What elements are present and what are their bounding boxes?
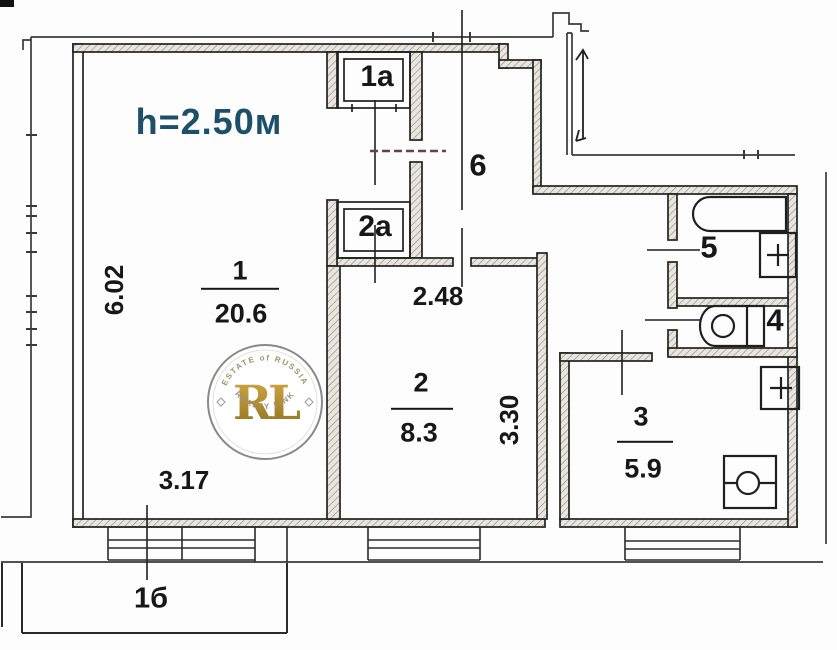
wall-corridor-right — [533, 60, 541, 192]
room5-label: 5 — [700, 232, 717, 263]
kitchen-window — [625, 527, 740, 560]
room1-area: 20.6 — [215, 301, 268, 328]
wall-bath-top — [533, 186, 797, 194]
dim-room1-width: 3.17 — [159, 467, 210, 493]
room2-area: 8.3 — [400, 420, 438, 447]
wall-bottom-left — [73, 519, 545, 527]
room1-number: 1 — [232, 258, 247, 285]
windows — [108, 527, 740, 562]
balcony-window-door — [108, 527, 287, 562]
room2-window — [368, 527, 480, 560]
wall-wc-bottom — [668, 348, 797, 357]
room4-label: 4 — [766, 305, 783, 336]
wall-top — [73, 44, 507, 52]
dim-room1-depth: 6.02 — [101, 265, 127, 316]
ceiling-height-label: h=2.50м — [136, 104, 283, 140]
bathtub-icon — [693, 197, 786, 231]
corner-mark — [0, 0, 14, 7]
room6-label: 6 — [469, 150, 486, 181]
toilet-icon — [700, 306, 764, 346]
room3-number: 3 — [633, 404, 648, 431]
floor-plan-drawing: RL ESTATE of RUSSIA REALTY LINK — [0, 0, 837, 650]
stair-arrow-icon — [576, 50, 588, 141]
room3-area: 5.9 — [624, 456, 662, 483]
room2-number: 2 — [413, 370, 428, 397]
wall-room1-room2 — [327, 266, 340, 519]
dim-room2-depth: 3.30 — [496, 395, 522, 446]
fraction-line — [391, 408, 453, 410]
wall-left — [73, 44, 83, 527]
fraction-line — [617, 441, 673, 443]
floor-plan: RL ESTATE of RUSSIA REALTY LINK h=2.50м … — [0, 0, 837, 650]
wall-kitchen-left — [560, 353, 569, 519]
watermark-logo: RL ESTATE of RUSSIA REALTY LINK — [208, 345, 322, 459]
closet-2a-label: 2a — [358, 212, 391, 242]
stove-icon — [724, 456, 776, 508]
wall-bottom-kitchen — [560, 519, 797, 527]
closet-1a-label: 1a — [360, 62, 393, 92]
dim-room2-width: 2.48 — [413, 283, 464, 309]
stairwell-wall — [567, 33, 572, 155]
wall-room2-right — [537, 253, 547, 519]
fraction-line — [201, 288, 279, 290]
balcony-label: 1б — [134, 585, 168, 614]
